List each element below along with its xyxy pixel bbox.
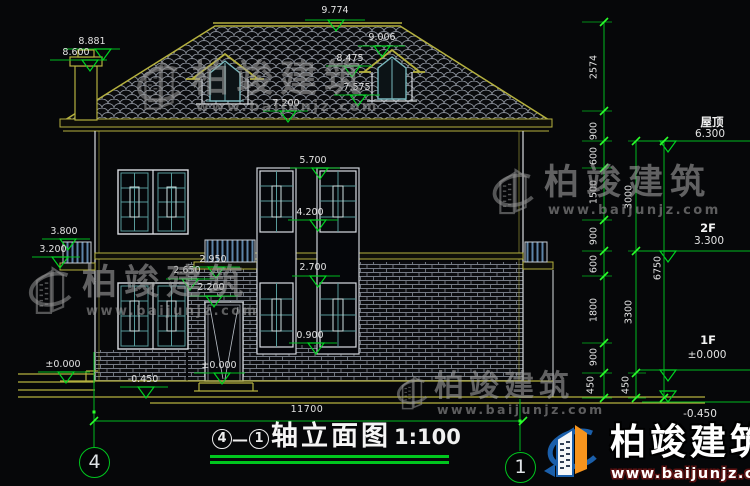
dim-1500: 1500 [589, 180, 599, 204]
mark-w1-top: 2.700 [299, 263, 326, 273]
mark-railing-top: 2.950 [199, 255, 226, 265]
dim-3000: 3000 [624, 185, 634, 209]
title-scale: 1:100 [394, 427, 461, 448]
dim-overall-width: 11700 [291, 405, 324, 415]
mark-w2-top: 5.700 [299, 156, 326, 166]
mark-dormer-base: 7.575 [343, 83, 370, 93]
level-grade-right: -0.450 [683, 409, 717, 420]
level-roof-label: 屋顶 [701, 117, 724, 129]
title-axis-bubble-right: 1 [249, 429, 269, 449]
mark-w1-sill: 0.900 [296, 331, 323, 341]
mark-left-balcony-top: 3.800 [50, 227, 77, 237]
level-1f-label: 1F [700, 335, 716, 347]
level-2f-label: 2F [700, 223, 716, 235]
mark-eave: 7.200 [272, 99, 299, 109]
mark-left-balcony-bottom: 3.200 [39, 245, 66, 255]
mark-ground-left: ±0.000 [45, 360, 80, 370]
brand-logo-text: 柏竣建筑 [610, 425, 750, 461]
roof [65, 23, 549, 120]
mark-w2-bottom: 4.200 [296, 208, 323, 218]
mark-ridge: 9.774 [321, 6, 348, 16]
dim-450a: 450 [586, 376, 596, 394]
dim-450b: 450 [621, 376, 631, 394]
elevation-linework [0, 0, 750, 486]
balcony-railing [63, 240, 547, 263]
dim-3300: 3300 [624, 300, 634, 324]
mark-grade-left: -0.450 [128, 375, 159, 385]
brand-logo-icon [538, 419, 606, 483]
mark-dormer-top: 9.006 [368, 33, 395, 43]
title-axis-bubble-left: 4 [212, 429, 232, 449]
mark-chimney-top: 8.881 [78, 37, 105, 47]
dim-900c: 900 [589, 348, 599, 366]
eave-band [60, 119, 552, 131]
mark-dormer-eave: 8.475 [336, 54, 363, 64]
title-dash: — [232, 432, 248, 448]
mark-door-top: 2.200 [197, 283, 224, 293]
dim-1800: 1800 [589, 298, 599, 322]
axis-bubble-1: 1 [505, 452, 536, 483]
level-1f-value: ±0.000 [688, 350, 727, 361]
dim-600a: 600 [589, 147, 599, 165]
cad-elevation-drawing: 9.774 8.881 8.600 9.006 8.475 7.575 7.20… [0, 0, 750, 486]
level-roof-value: 6.300 [695, 129, 725, 140]
title-underline [210, 461, 449, 464]
mark-chimney-cap: 8.600 [62, 48, 89, 58]
title-text: 轴立面图 [271, 423, 391, 450]
mark-door-zero: ±0.000 [201, 361, 236, 371]
brand-logo-url: www.baijunjz.com [611, 467, 750, 482]
dim-600b: 600 [589, 255, 599, 273]
dim-2574: 2574 [589, 55, 599, 79]
level-2f-value: 3.300 [694, 236, 724, 247]
dim-900a: 900 [589, 122, 599, 140]
brand-logo: 柏竣建筑 www.baijunjz.com [538, 419, 750, 486]
dim-900b: 900 [589, 227, 599, 245]
mark-balcony-slab: 2.650 [173, 266, 200, 276]
axis-bubble-4: 4 [79, 447, 110, 478]
title-underline [210, 455, 449, 458]
dim-6750: 6750 [653, 256, 663, 280]
